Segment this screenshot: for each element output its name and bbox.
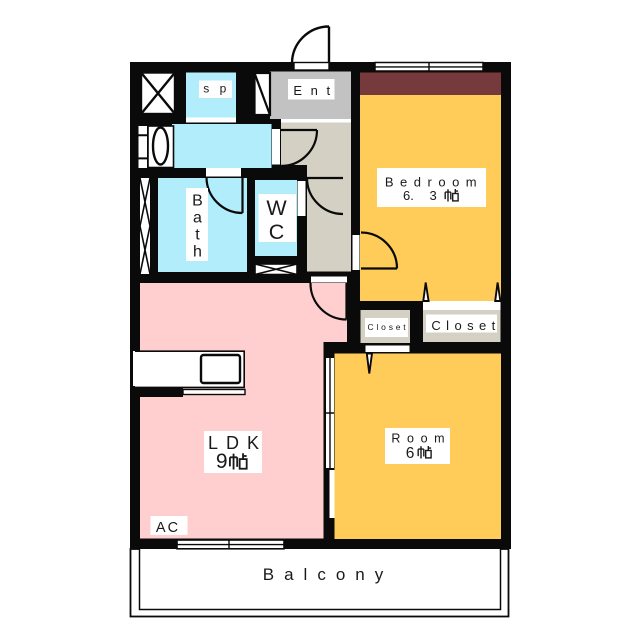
svg-text:h: h bbox=[193, 244, 202, 261]
svg-text:B: B bbox=[192, 193, 203, 210]
svg-text:6: 6 bbox=[406, 445, 415, 462]
svg-text:C: C bbox=[269, 220, 285, 244]
svg-text:s p: s p bbox=[203, 81, 230, 95]
svg-text:3: 3 bbox=[430, 188, 437, 203]
svg-text:W: W bbox=[266, 196, 287, 220]
svg-text:Closet: Closet bbox=[431, 318, 500, 333]
svg-text:6.: 6. bbox=[403, 188, 414, 203]
svg-text:Balcony: Balcony bbox=[263, 565, 393, 584]
svg-text:Room: Room bbox=[391, 432, 451, 446]
svg-text:9: 9 bbox=[216, 450, 228, 473]
svg-text:Closet: Closet bbox=[368, 322, 409, 332]
svg-text:AC: AC bbox=[156, 520, 180, 536]
svg-text:t: t bbox=[195, 227, 200, 244]
svg-text:E n t: E n t bbox=[293, 83, 332, 98]
svg-text:a: a bbox=[193, 210, 202, 227]
